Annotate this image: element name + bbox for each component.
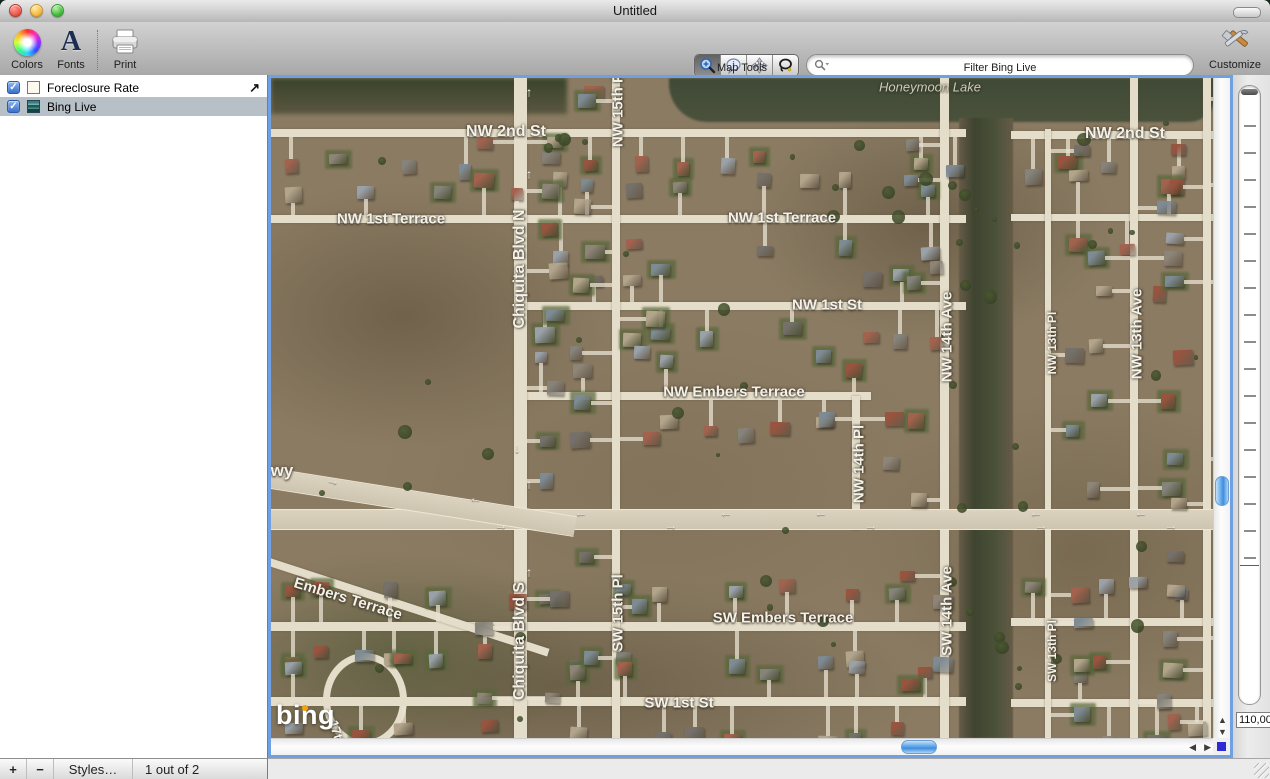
map-house xyxy=(285,159,299,174)
map-house xyxy=(542,151,560,164)
tree xyxy=(544,143,553,152)
map-house xyxy=(863,271,882,286)
scale-value-field[interactable]: 110,000 xyxy=(1236,712,1270,728)
map-house xyxy=(579,552,594,563)
layer-detail-arrow-icon[interactable]: ↗ xyxy=(249,81,260,94)
map-house xyxy=(783,322,802,336)
driveway xyxy=(1180,720,1203,724)
road-arrow: → xyxy=(1035,518,1048,533)
driveway xyxy=(1078,683,1082,699)
map-house xyxy=(1162,481,1181,495)
map-house xyxy=(907,276,921,291)
map-house xyxy=(478,644,493,659)
driveway xyxy=(855,674,859,697)
driveway xyxy=(860,417,885,421)
driveway xyxy=(1066,139,1070,156)
map-house xyxy=(545,692,561,703)
map-house xyxy=(355,650,374,662)
road xyxy=(1011,618,1213,626)
map-house xyxy=(625,182,641,197)
map-house xyxy=(800,174,819,188)
map-house xyxy=(285,186,302,203)
driveway xyxy=(919,137,923,158)
driveway xyxy=(527,439,540,443)
tree xyxy=(718,303,731,316)
driveway xyxy=(1180,600,1184,618)
driveway xyxy=(591,401,612,405)
map-house xyxy=(1169,179,1183,195)
road-arrow: ← xyxy=(575,505,588,520)
tree xyxy=(425,379,431,385)
map-house xyxy=(1066,424,1080,436)
map-house xyxy=(475,622,493,635)
map-house xyxy=(1087,481,1100,497)
map-house xyxy=(651,263,671,275)
road-arrow: → xyxy=(495,518,508,533)
driveway xyxy=(895,706,899,722)
road-arrow: ↑ xyxy=(526,85,533,100)
map-house xyxy=(1167,714,1180,731)
street-label: NW 1st Terrace xyxy=(728,210,836,227)
driveway xyxy=(588,137,592,160)
map-house xyxy=(1074,707,1090,722)
road-arrow: ↑ xyxy=(526,565,533,580)
map-house xyxy=(908,413,924,429)
tree xyxy=(782,527,788,533)
map-house xyxy=(945,165,963,177)
map-house xyxy=(921,247,941,261)
driveway xyxy=(1031,593,1035,618)
street-label: NW 15th Pl xyxy=(610,78,627,147)
driveway xyxy=(735,631,739,659)
driveway xyxy=(291,203,295,215)
print-button[interactable]: Print xyxy=(102,25,148,71)
road xyxy=(1011,699,1213,707)
horizontal-scroll-thumb[interactable] xyxy=(901,740,937,754)
driveway xyxy=(659,275,663,302)
layer-row-bing-live[interactable]: ✓ Bing Live xyxy=(0,97,267,116)
road-arrow: → xyxy=(665,518,678,533)
map-house xyxy=(753,151,765,163)
map-house xyxy=(839,172,851,188)
driveway xyxy=(705,310,709,331)
tree xyxy=(576,337,582,343)
map-house xyxy=(1165,276,1184,287)
corner-indicator xyxy=(1217,742,1226,751)
map-house xyxy=(1163,662,1183,678)
map-house xyxy=(548,263,568,280)
map-house xyxy=(901,679,920,691)
driveway xyxy=(1051,713,1074,717)
map-view: ↑↑↓↑↑→←←←←←←→→→→→Honeymoon LakeNW 2nd St… xyxy=(268,75,1233,758)
map-house xyxy=(757,245,773,255)
road xyxy=(1011,214,1213,221)
title-bar: Untitled xyxy=(0,0,1270,23)
map-house xyxy=(643,432,660,445)
driveway xyxy=(767,680,771,697)
tree xyxy=(1108,228,1114,234)
driveway xyxy=(577,706,581,727)
map-house xyxy=(1096,286,1112,296)
map-house xyxy=(863,331,880,342)
bing-logo-dot xyxy=(302,705,308,711)
tree xyxy=(1012,443,1019,450)
driveway xyxy=(362,631,366,650)
map-house xyxy=(1074,145,1090,157)
driveway xyxy=(1138,256,1164,260)
toolbar-toggle-button[interactable] xyxy=(1233,7,1261,18)
map-house xyxy=(384,581,397,597)
map-house xyxy=(673,182,687,194)
app-window: Untitled Colors A Fonts Pr xyxy=(0,0,1270,779)
map-house xyxy=(434,186,451,200)
driveway xyxy=(527,696,545,700)
scroll-right-arrow[interactable]: ▶ xyxy=(1204,740,1211,755)
map-house xyxy=(1167,453,1184,466)
map-house xyxy=(481,720,499,734)
street-label: Chiquita Blvd S xyxy=(511,582,529,700)
fonts-button[interactable]: A Fonts xyxy=(50,25,92,71)
map-house xyxy=(314,646,328,659)
toolbar: Colors A Fonts Print xyxy=(0,22,1270,76)
driveway xyxy=(605,250,612,254)
driveway xyxy=(630,286,634,302)
driveway xyxy=(843,188,847,215)
map-house xyxy=(890,722,904,736)
driveway xyxy=(1184,280,1203,284)
driveway xyxy=(527,269,549,273)
map-house xyxy=(1058,155,1078,169)
driveway xyxy=(1138,206,1157,210)
map-house xyxy=(285,662,302,675)
map-house xyxy=(1070,587,1089,604)
driveway xyxy=(1103,344,1130,348)
driveway xyxy=(730,706,734,734)
road-arrow: ↓ xyxy=(514,441,521,456)
map-house xyxy=(819,412,835,427)
street-label: SW Embers Terrace xyxy=(713,610,854,627)
driveway xyxy=(576,681,580,697)
driveway xyxy=(657,603,661,622)
map-house xyxy=(357,185,375,198)
map-house xyxy=(676,162,688,176)
layer-row-foreclosure-rate[interactable]: ✓ Foreclosure Rate ↗ xyxy=(0,78,267,97)
driveway xyxy=(921,281,940,285)
bottom-bar: + − Styles… 1 out of 2 xyxy=(0,758,1270,779)
map-house xyxy=(700,331,713,347)
street-label: NW 2nd St xyxy=(1085,125,1165,143)
color-wheel-icon xyxy=(14,29,41,56)
map-house xyxy=(845,588,858,600)
street-label: NW 1st Terrace xyxy=(337,211,445,228)
map-house xyxy=(1129,577,1147,588)
driveway xyxy=(590,283,612,287)
tree xyxy=(623,251,629,257)
tree xyxy=(1015,683,1022,690)
map-house xyxy=(570,432,591,449)
map-house xyxy=(583,160,597,172)
layer-checkbox[interactable]: ✓ xyxy=(7,100,20,113)
driveway xyxy=(590,438,612,442)
map-house xyxy=(1093,656,1106,670)
map-house xyxy=(720,158,735,175)
map-house xyxy=(1161,394,1176,409)
map-house xyxy=(905,139,919,152)
layer-sidebar: ✓ Foreclosure Rate ↗ ✓ Bing Live xyxy=(0,75,268,758)
tree xyxy=(1151,370,1162,381)
driveway xyxy=(620,437,643,441)
map-house xyxy=(429,653,443,668)
map-house xyxy=(757,172,771,187)
street-label: NW 13th Ave xyxy=(1129,289,1146,380)
customize-button[interactable]: Customize xyxy=(1202,25,1268,71)
driveway xyxy=(1183,185,1203,189)
driveway xyxy=(926,197,930,215)
driveway xyxy=(824,670,828,697)
map-house xyxy=(634,156,648,172)
road-arrow: ↑ xyxy=(526,477,533,492)
map-house xyxy=(1089,339,1104,354)
map-house xyxy=(573,198,591,214)
map-house xyxy=(770,422,790,436)
map-house xyxy=(846,363,863,379)
map-tools-label: Map Tools xyxy=(690,62,794,74)
tree xyxy=(1014,242,1020,248)
map-house xyxy=(394,654,412,665)
bing-thumbnail-icon[interactable] xyxy=(27,100,40,113)
bing-logo: bing xyxy=(276,702,335,728)
scale-panel: 110,000 xyxy=(1233,75,1270,758)
driveway xyxy=(291,674,295,697)
foreclosure-swatch[interactable] xyxy=(27,81,40,94)
map-house xyxy=(1025,581,1042,593)
map-house xyxy=(585,245,605,259)
road-arrow: → xyxy=(865,518,878,533)
map-house xyxy=(511,188,524,201)
map-house xyxy=(540,436,555,447)
map-house xyxy=(394,723,414,736)
map-house xyxy=(542,183,560,199)
driveway xyxy=(1051,149,1074,153)
map-house xyxy=(1173,350,1193,366)
map-house xyxy=(921,185,935,197)
map-house xyxy=(1167,585,1186,599)
scrollbar-corner xyxy=(1213,738,1230,755)
map-canvas[interactable]: ↑↑↓↑↑→←←←←←←→→→→→Honeymoon LakeNW 2nd St… xyxy=(271,78,1213,738)
map-house xyxy=(535,352,547,363)
driveway xyxy=(778,400,782,422)
map-house xyxy=(546,310,565,322)
tree xyxy=(831,642,836,647)
driveway xyxy=(1051,593,1071,597)
map-house xyxy=(540,473,553,489)
map-house xyxy=(541,222,557,236)
driveway xyxy=(1106,660,1130,664)
driveway xyxy=(582,351,612,355)
zoom-slider-ticks xyxy=(1244,100,1256,563)
map-house xyxy=(1088,250,1106,265)
driveway xyxy=(898,310,902,334)
driveway xyxy=(402,706,406,723)
map-house xyxy=(623,275,641,286)
road-arrow: ← xyxy=(1135,505,1148,520)
map-house xyxy=(779,578,796,592)
tree xyxy=(672,407,684,419)
tree xyxy=(1194,355,1199,360)
map-house xyxy=(634,346,650,359)
vertical-scroll-thumb[interactable] xyxy=(1215,476,1229,506)
driveway xyxy=(1031,139,1035,169)
driveway xyxy=(826,706,830,736)
driveway xyxy=(927,498,940,502)
driveway xyxy=(291,631,295,657)
street-label: SW 1st St xyxy=(644,695,713,712)
status-strip xyxy=(268,758,1270,779)
driveway xyxy=(678,193,682,215)
zoom-scale-slider[interactable] xyxy=(1238,85,1261,705)
map-house xyxy=(1171,498,1187,510)
driveway xyxy=(1105,256,1130,260)
content-area: ✓ Foreclosure Rate ↗ ✓ Bing Live ↑↑↓↑↑→←… xyxy=(0,75,1270,758)
map-house xyxy=(1091,394,1108,407)
map-house xyxy=(583,651,598,665)
tree xyxy=(1129,230,1135,236)
map-house xyxy=(570,346,583,360)
scroll-left-arrow[interactable]: ◀ xyxy=(1189,740,1196,755)
driveway xyxy=(1107,707,1111,736)
filter-label: Filter Bing Live xyxy=(806,62,1194,74)
map-house xyxy=(659,355,673,369)
tree xyxy=(482,448,494,460)
driveway xyxy=(854,706,858,733)
map-house xyxy=(889,587,906,601)
tree xyxy=(882,186,895,199)
road-arrow: ← xyxy=(468,490,483,507)
driveway xyxy=(1051,428,1066,432)
street-label: SW 14th Ave xyxy=(939,566,956,656)
street-label: wy xyxy=(271,461,293,481)
map-house xyxy=(816,350,831,363)
map-house xyxy=(547,381,564,396)
driveway xyxy=(591,205,612,209)
map-house xyxy=(646,310,666,327)
map-house xyxy=(581,179,594,192)
layer-checkbox[interactable]: ✓ xyxy=(7,81,20,94)
street-label: SW 13th Pl xyxy=(1045,620,1059,682)
driveway xyxy=(434,631,438,654)
scroll-down-arrow[interactable]: ▼ xyxy=(1214,726,1231,738)
zoom-slider-thumb[interactable] xyxy=(1241,89,1258,95)
map-house xyxy=(626,239,642,250)
street-label: NW Embers Terrace xyxy=(663,384,804,401)
map-house xyxy=(578,94,596,108)
fonts-label: Fonts xyxy=(50,59,92,71)
driveway xyxy=(1184,237,1203,241)
tree xyxy=(716,453,720,457)
resize-grip[interactable] xyxy=(1254,763,1269,778)
driveway xyxy=(853,631,857,651)
layer-label: Foreclosure Rate xyxy=(47,81,139,95)
map-house xyxy=(570,727,588,738)
map-house xyxy=(911,493,928,507)
driveway xyxy=(527,597,550,601)
map-house xyxy=(1157,694,1171,709)
scroll-up-arrow[interactable]: ▲ xyxy=(1214,714,1231,726)
tree xyxy=(919,172,933,186)
tree xyxy=(1088,240,1097,249)
remove-layer-button[interactable]: − xyxy=(27,759,54,779)
map-house xyxy=(900,571,915,582)
map-house xyxy=(352,729,370,738)
road xyxy=(521,302,966,310)
road-arrow: ↑ xyxy=(526,167,533,182)
map-house xyxy=(728,659,744,674)
driveway xyxy=(1076,182,1080,214)
map-house xyxy=(1119,244,1134,256)
map-house xyxy=(574,395,591,411)
horizontal-scrollbar[interactable]: ◀ ▶ xyxy=(271,738,1213,755)
street-label: NW 2nd St xyxy=(466,123,546,141)
map-house xyxy=(1065,348,1084,363)
window-title: Untitled xyxy=(0,3,1270,18)
tree xyxy=(398,425,412,439)
map-house xyxy=(904,174,918,185)
map-house xyxy=(1101,162,1117,173)
driveway xyxy=(915,574,940,578)
driveway xyxy=(527,189,542,193)
map-house xyxy=(1164,251,1183,266)
map-house xyxy=(550,591,569,607)
tree xyxy=(959,189,971,201)
driveway xyxy=(291,597,295,622)
colors-button[interactable]: Colors xyxy=(4,25,50,71)
tree xyxy=(966,608,973,615)
driveway xyxy=(639,137,643,156)
add-layer-button[interactable]: + xyxy=(0,759,27,779)
map-house xyxy=(893,334,907,349)
tree xyxy=(790,154,795,159)
tree xyxy=(1131,619,1145,633)
tree xyxy=(582,139,588,145)
driveway xyxy=(1138,486,1162,490)
map-house xyxy=(573,364,592,378)
driveway xyxy=(464,137,468,164)
street-label: NW 13th Pl xyxy=(1045,312,1059,375)
driveway xyxy=(598,656,612,660)
driveway xyxy=(1187,502,1203,506)
tree xyxy=(948,181,957,190)
styles-button[interactable]: Styles… xyxy=(54,759,133,779)
driveway xyxy=(835,417,852,421)
tree xyxy=(854,140,865,151)
map-house xyxy=(623,332,642,347)
road-arrow: ← xyxy=(720,505,733,520)
driveway xyxy=(725,137,729,158)
street-label: Chiquita Blvd N xyxy=(511,209,529,328)
map-house xyxy=(882,456,899,470)
driveway xyxy=(1183,668,1203,672)
driveway xyxy=(527,386,547,390)
driveway xyxy=(1100,487,1130,491)
vertical-scrollbar[interactable]: ▲ ▼ xyxy=(1213,78,1230,738)
map-house xyxy=(914,158,928,170)
map-house xyxy=(1171,144,1186,156)
driveway xyxy=(919,143,940,147)
zoom-slider-endline xyxy=(1240,565,1259,566)
map-house xyxy=(1165,233,1184,246)
colors-label: Colors xyxy=(4,59,50,71)
road xyxy=(1203,78,1211,738)
